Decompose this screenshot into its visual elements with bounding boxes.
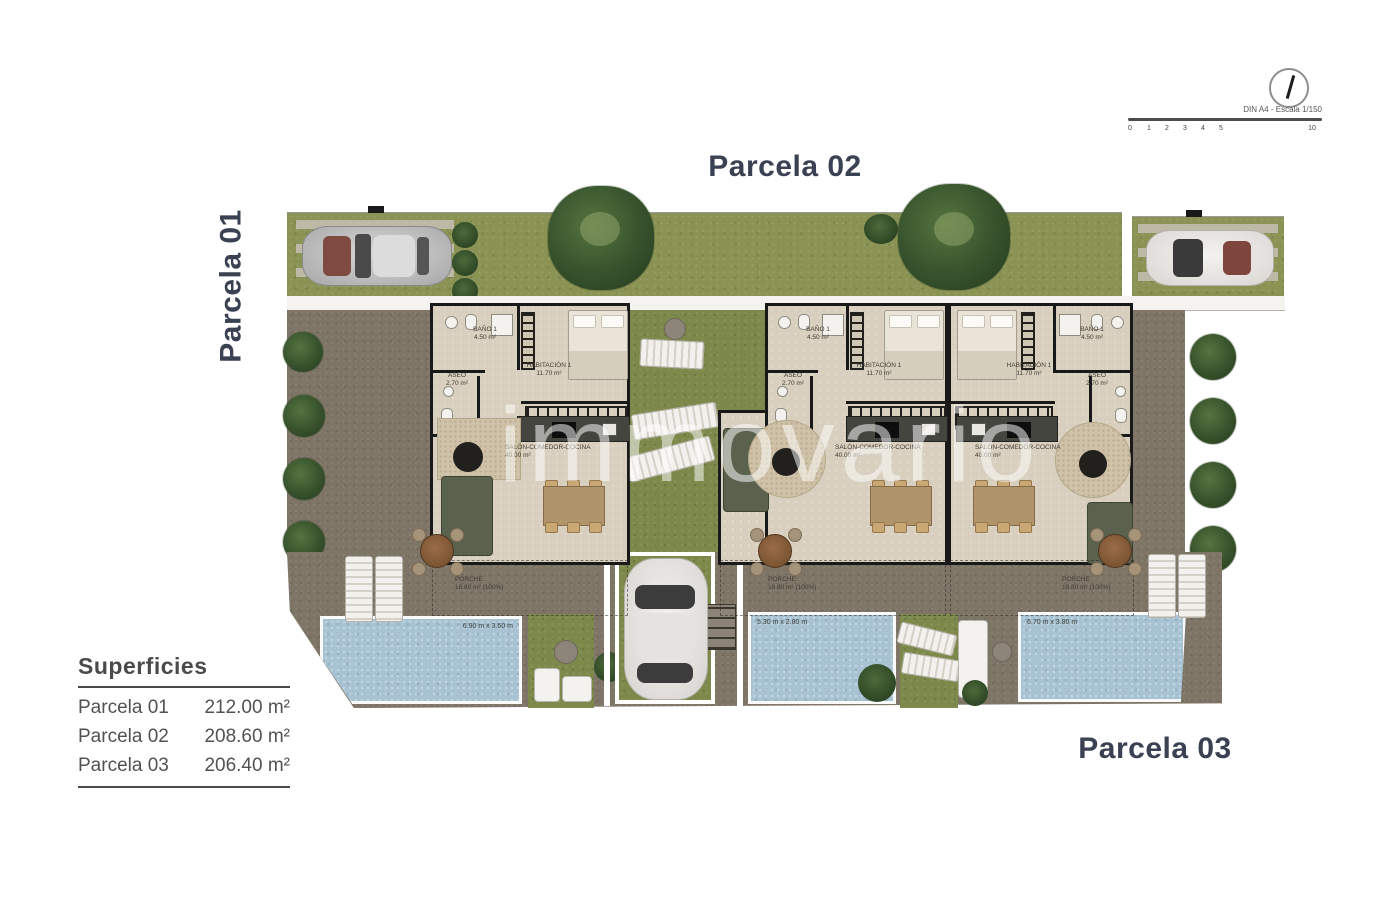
car-roof [373, 235, 415, 277]
legend-value: 212.00 m² [204, 697, 290, 719]
pillow [990, 315, 1013, 328]
patio-chair [788, 528, 802, 542]
chair [894, 522, 907, 533]
pool-1: 6.90 m x 3.60 m [320, 616, 522, 704]
dining-table [973, 486, 1035, 526]
pillow [601, 315, 624, 328]
palm-crown-icon [580, 212, 620, 246]
legend-value: 208.60 m² [204, 726, 290, 748]
plant-icon [962, 680, 988, 706]
chair [589, 522, 602, 533]
pool-1-dimensions: 6.90 m x 3.60 m [463, 623, 513, 630]
legend-rule-top [78, 686, 290, 688]
patio-chair [412, 528, 426, 542]
pillow [889, 315, 912, 328]
patio-chair [750, 562, 764, 576]
coffee-table [1079, 450, 1107, 478]
sun-lounger [1178, 554, 1206, 618]
scale-tick-2: 2 [1161, 125, 1173, 132]
scale-bar [1128, 118, 1322, 121]
legend-row-parcela-03: Parcela 03 206.40 m² [78, 755, 290, 777]
room-label-habitacion-u1: HABITACIÓN 111.70 m² [512, 362, 586, 378]
title-parcela-02: Parcela 02 [620, 150, 950, 184]
floor-plan-page: DIN A4 - Escala 1/150 0 1 2 3 4 5 10 Par… [0, 0, 1400, 910]
room-label-salon-u2: SALÓN-COMEDOR-COCINA40.00 m² [835, 444, 927, 460]
room-label-porche-u3: PORCHE18.80 m² (100%) [1062, 576, 1124, 592]
chair [872, 522, 885, 533]
car-windshield [355, 234, 371, 278]
tree-icon [283, 395, 325, 437]
scale-tick-0: 0 [1124, 125, 1136, 132]
kitchen-sink-icon [602, 423, 617, 436]
sun-lounger [375, 556, 403, 622]
patio-table [758, 534, 792, 568]
patio-chair [750, 528, 764, 542]
patio-chair [450, 562, 464, 576]
car-windshield [1173, 239, 1203, 277]
tree-icon [283, 458, 325, 500]
outdoor-sofa [562, 676, 592, 702]
house-unit-1 [430, 303, 630, 565]
cooktop-icon [552, 422, 576, 438]
scale-tick-5: 5 [1215, 125, 1227, 132]
legend-title: Superficies [78, 653, 290, 680]
patio-chair [412, 562, 426, 576]
room-label-aseo-u1: ASEO2.70 m² [436, 372, 478, 388]
car-roof [637, 613, 693, 659]
wall [521, 401, 627, 404]
sun-lounger [1148, 554, 1176, 618]
patio-chair [1128, 562, 1142, 576]
patio-table [420, 534, 454, 568]
cooktop-icon [1007, 422, 1031, 438]
room-label-aseo-u2: ASEO2.70 m² [772, 372, 814, 388]
patio-chair [1128, 528, 1142, 542]
wall [846, 401, 948, 404]
kitchen-counter [846, 416, 948, 442]
kitchen-sink-icon [921, 423, 936, 436]
bush-icon [452, 250, 478, 276]
patio-chair [1090, 528, 1104, 542]
bush-icon [452, 222, 478, 248]
car-windshield [635, 585, 695, 609]
room-label-salon-u3: SALÓN-COMEDOR-COCINA40.00 m² [975, 444, 1067, 460]
legend-value: 206.40 m² [204, 755, 290, 777]
chair [916, 522, 929, 533]
coffee-table [772, 448, 800, 476]
scale-note: DIN A4 - Escala 1/150 [1198, 105, 1322, 114]
legend-row-parcela-01: Parcela 01 212.00 m² [78, 697, 290, 719]
house-unit-3 [948, 303, 1133, 565]
room-label-habitacion-u2: HABITACIÓN 111.70 m² [842, 362, 916, 378]
car-white-horizontal [1146, 230, 1274, 286]
scale-tick-4: 4 [1197, 125, 1209, 132]
north-indicator [1269, 68, 1309, 108]
path-vertical [1122, 212, 1132, 296]
coffee-table [453, 442, 483, 472]
pillow [962, 315, 985, 328]
toilet-icon [1115, 408, 1127, 423]
legend-rule-bottom [78, 786, 290, 788]
patio-chair [450, 528, 464, 542]
pillow [573, 315, 596, 328]
sun-lounger [639, 338, 704, 369]
legend-label: Parcela 01 [78, 697, 169, 719]
car-white-vertical [624, 558, 708, 700]
patio-chair [1090, 562, 1104, 576]
kitchen-counter [956, 416, 1058, 442]
chair [545, 522, 558, 533]
dining-set [860, 480, 944, 532]
boundary-tick [1186, 210, 1202, 217]
room-label-bano-u2: BAÑO 14.50 m² [788, 326, 848, 342]
title-parcela-03: Parcela 03 [1040, 732, 1270, 766]
car-rear-window [417, 237, 429, 275]
chair [997, 522, 1010, 533]
room-label-porche-u1: PORCHE18.80 m² (100%) [455, 576, 517, 592]
chair [975, 522, 988, 533]
chair [567, 522, 580, 533]
chair [1019, 522, 1032, 533]
patio-table [1098, 534, 1132, 568]
north-needle-icon [1286, 75, 1295, 99]
title-parcela-01: Parcela 01 [215, 199, 251, 374]
pool-3: 6.70 m x 3.80 m [1018, 612, 1186, 702]
room-label-bano-u3: BAÑO 14.50 m² [1062, 326, 1122, 342]
dining-table [870, 486, 932, 526]
car-interior [1223, 241, 1251, 275]
scale-tick-10: 10 [1306, 125, 1318, 132]
side-yard-right [1133, 310, 1185, 555]
outdoor-sofa [534, 668, 560, 702]
scale-tick-3: 3 [1179, 125, 1191, 132]
tree-icon [1190, 398, 1236, 444]
pool-2-dimensions: 5.30 m x 2.80 m [757, 619, 807, 626]
patio-chair [788, 562, 802, 576]
scale-tick-1: 1 [1143, 125, 1155, 132]
sun-lounger [345, 556, 373, 622]
tree-icon [1190, 462, 1236, 508]
kitchen-sink-icon [971, 423, 986, 436]
dining-table [543, 486, 605, 526]
bush-icon [858, 664, 896, 702]
car-silver [302, 226, 452, 286]
legend-label: Parcela 02 [78, 726, 169, 748]
pillow [917, 315, 940, 328]
room-label-salon-u1: SALÓN-COMEDOR-COCINA40.00 m² [505, 444, 597, 460]
stepping-stone [554, 640, 578, 664]
tree-icon [283, 332, 323, 372]
boundary-tick [368, 206, 384, 213]
kitchen-counter [517, 416, 630, 442]
legend-row-parcela-02: Parcela 02 208.60 m² [78, 726, 290, 748]
dining-set [963, 480, 1047, 532]
room-label-habitacion-u3: HABITACIÓN 111.70 m² [992, 362, 1066, 378]
wall [1053, 306, 1056, 370]
room-label-porche-u2: PORCHE18.80 m² (100%) [768, 576, 830, 592]
legend-superficies: Superficies Parcela 01 212.00 m² Parcela… [78, 653, 290, 788]
bush-icon [864, 214, 898, 244]
palm-crown-icon [934, 212, 974, 246]
dining-set [533, 480, 615, 532]
wall [517, 306, 520, 370]
tree-icon [1190, 334, 1236, 380]
room-label-aseo-u3: ASEO2.70 m² [1076, 372, 1118, 388]
legend-label: Parcela 03 [78, 755, 169, 777]
cooktop-icon [875, 422, 899, 438]
car-interior [323, 236, 351, 276]
room-label-bano-u1: BAÑO 14.50 m² [455, 326, 515, 342]
stepping-stone [992, 642, 1012, 662]
stepping-stone [664, 318, 686, 340]
pool-3-dimensions: 6.70 m x 3.80 m [1027, 619, 1077, 626]
wall [951, 401, 1055, 404]
car-rear-window [637, 663, 693, 683]
